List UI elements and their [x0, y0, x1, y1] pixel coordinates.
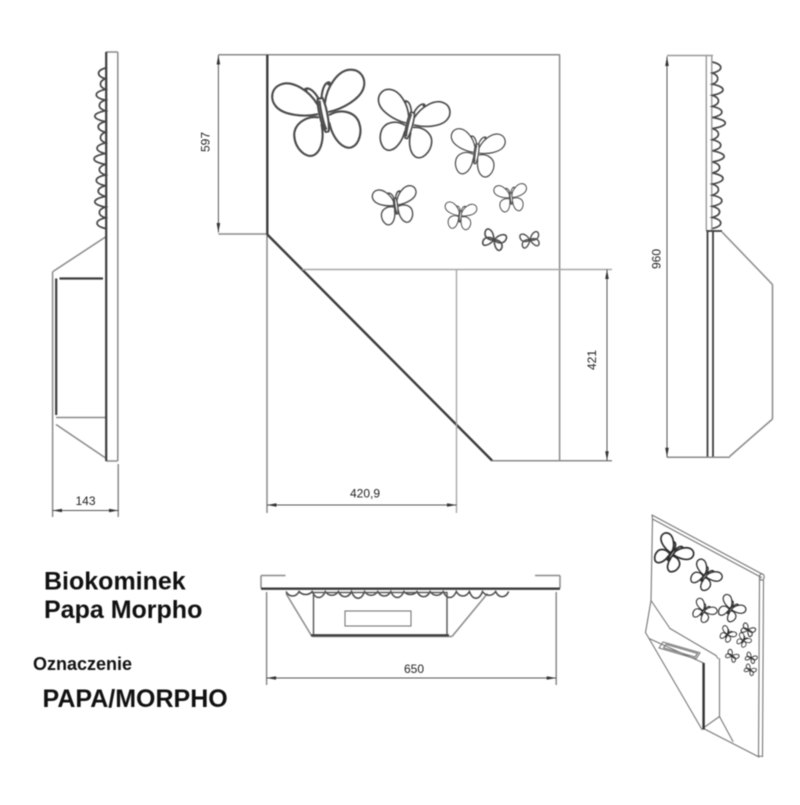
svg-text:Oznaczenie: Oznaczenie: [33, 654, 132, 674]
svg-text:Biokominek: Biokominek: [44, 568, 186, 596]
svg-text:650: 650: [404, 662, 424, 676]
svg-text:Papa Morpho: Papa Morpho: [44, 596, 202, 624]
svg-text:597: 597: [199, 132, 213, 152]
svg-text:143: 143: [75, 494, 95, 508]
svg-text:420,9: 420,9: [350, 487, 380, 501]
svg-text:421: 421: [585, 350, 599, 370]
svg-text:PAPA/MORPHO: PAPA/MORPHO: [43, 685, 228, 713]
svg-text:960: 960: [650, 249, 664, 269]
